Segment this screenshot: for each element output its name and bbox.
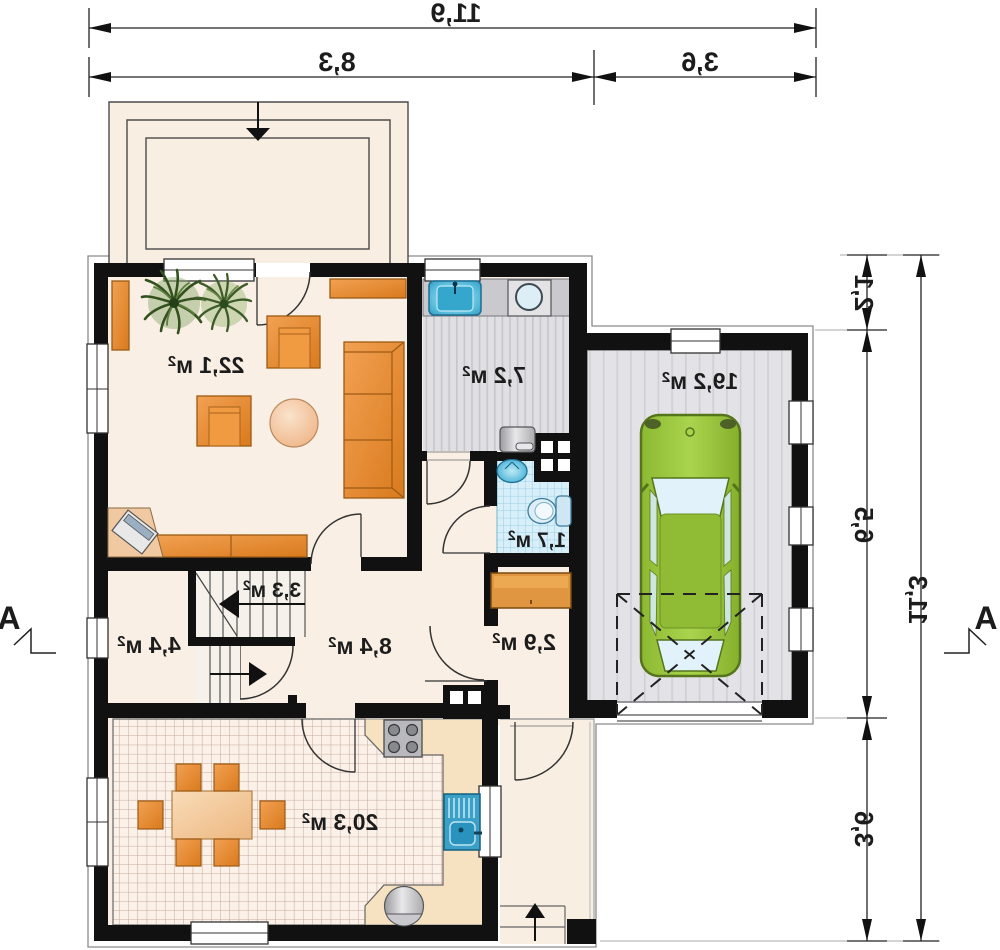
svg-text:3,6: 3,6 [681, 47, 719, 77]
svg-text:A: A [0, 600, 21, 636]
svg-text:22,1 м2: 22,1 м2 [168, 352, 245, 378]
svg-text:8,4 м2: 8,4 м2 [328, 633, 392, 659]
svg-text:2,1: 2,1 [849, 275, 879, 311]
svg-text:4,4 м2: 4,4 м2 [117, 632, 181, 658]
svg-text:11,3: 11,3 [903, 575, 933, 624]
svg-text:7,2 м2: 7,2 м2 [462, 362, 526, 388]
svg-text:8,3: 8,3 [318, 47, 356, 77]
svg-text:1,7 м2: 1,7 м2 [508, 527, 567, 552]
svg-text:A: A [974, 600, 997, 636]
svg-text:2,9 м2: 2,9 м2 [492, 629, 556, 655]
svg-text:20,3 м2: 20,3 м2 [302, 809, 379, 835]
svg-text:3,6: 3,6 [849, 811, 879, 847]
svg-text:3,3 м2: 3,3 м2 [243, 577, 302, 602]
svg-text:11,9: 11,9 [430, 0, 481, 28]
svg-text:19,2 м2: 19,2 м2 [662, 368, 739, 394]
svg-text:6,5: 6,5 [849, 507, 879, 543]
